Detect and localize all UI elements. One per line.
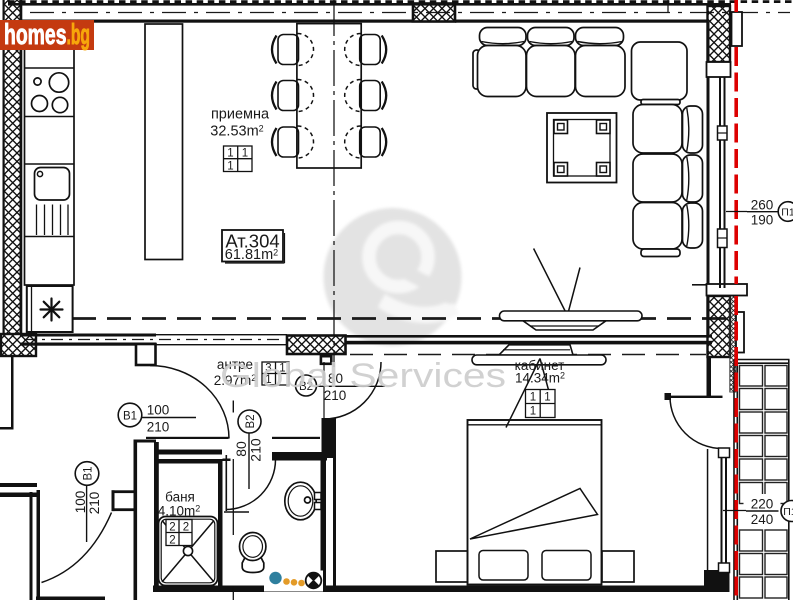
svg-text:1: 1 — [530, 392, 536, 404]
svg-text:61.81m2: 61.81m2 — [225, 247, 278, 263]
svg-text:1: 1 — [544, 392, 550, 404]
svg-text:B2: B2 — [245, 414, 257, 428]
svg-text:B1: B1 — [83, 466, 95, 480]
svg-text:.bg: .bg — [67, 19, 91, 51]
svg-text:2: 2 — [169, 522, 175, 534]
svg-text:220: 220 — [751, 497, 774, 512]
svg-text:210: 210 — [248, 438, 264, 462]
svg-text:1: 1 — [227, 161, 233, 173]
svg-text:1: 1 — [530, 406, 536, 418]
svg-text:П1: П1 — [781, 207, 793, 219]
svg-text:1: 1 — [227, 148, 233, 160]
svg-text:190: 190 — [751, 213, 774, 228]
svg-text:homes: homes — [4, 19, 67, 51]
svg-text:B1: B1 — [123, 411, 137, 423]
svg-text:П1: П1 — [783, 506, 793, 518]
svg-text:100: 100 — [73, 491, 88, 514]
svg-text:баня: баня — [165, 490, 195, 505]
svg-text:Global Services: Global Services — [220, 357, 506, 395]
svg-text:210: 210 — [147, 420, 170, 435]
svg-text:14.34m2: 14.34m2 — [515, 371, 565, 386]
svg-text:1: 1 — [242, 148, 248, 160]
svg-text:240: 240 — [751, 512, 774, 527]
svg-text:4.10m2: 4.10m2 — [158, 504, 201, 519]
svg-text:100: 100 — [147, 403, 170, 418]
svg-text:260: 260 — [751, 198, 774, 213]
svg-text:приемна: приемна — [211, 107, 270, 123]
svg-text:2: 2 — [169, 535, 175, 547]
svg-text:32.53m2: 32.53m2 — [210, 124, 263, 140]
svg-text:2: 2 — [183, 522, 189, 534]
svg-text:210: 210 — [87, 492, 102, 515]
